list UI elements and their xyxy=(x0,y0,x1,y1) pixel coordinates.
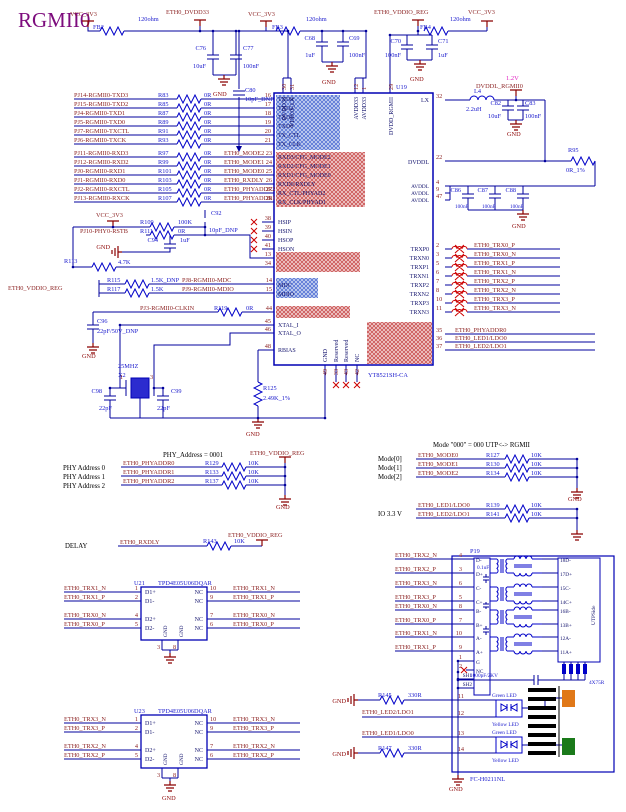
value: 1000pF/2KV xyxy=(470,673,498,679)
net-label: ETH0_TRX1_N xyxy=(395,630,437,637)
pin-number: 8 xyxy=(173,644,176,651)
pin-number: 46 xyxy=(265,326,271,333)
pin-label: LX xyxy=(421,98,430,104)
value: 100K xyxy=(178,219,192,226)
voltage-label: 1.2V xyxy=(506,75,519,82)
pin-label: TXD0 xyxy=(278,124,293,130)
value: 120ohm xyxy=(306,16,327,23)
pin-number: 22 xyxy=(436,154,442,161)
net-label: PJ0-RGMII0-RXD1 xyxy=(74,168,125,175)
gnd-label: GND xyxy=(276,504,290,511)
value: 120ohm xyxy=(138,16,159,23)
pin-label: D1+ xyxy=(145,721,156,727)
net-label: PJ5-RGMII0-TXD0 xyxy=(74,119,125,126)
pin-label: HSOP xyxy=(278,238,294,244)
pin-number: 1 xyxy=(120,374,123,381)
net-label: ETH0_TRX0_P xyxy=(474,242,515,249)
pin-label: TXD1 xyxy=(278,115,293,121)
magjack-p19: P19 0.1uF ETH0_TRX2_N4D-18D- ETH0_TRX2_P… xyxy=(395,548,614,772)
pin-number: 4 xyxy=(135,743,139,750)
refdes: FB3 xyxy=(272,24,283,31)
led-label: Yellow LED xyxy=(492,722,519,728)
net-label: ETH0_TRX2_P xyxy=(64,752,105,759)
net-label: ETH0_TRX0_N xyxy=(474,251,516,258)
net-label: VCC_3V3 xyxy=(248,11,275,18)
pin-label: C- xyxy=(476,586,482,592)
clkin-row: PJ3-RGMII0-CLKIN R1190R 44 xyxy=(140,305,273,312)
pin-number: 28 xyxy=(266,195,272,202)
pin-number: 33 xyxy=(333,369,340,375)
net-label: ETH0_LED2/LDO1 xyxy=(362,709,414,716)
value: 0R xyxy=(204,119,212,126)
gnd-label: GND xyxy=(213,91,227,98)
value: 100nF xyxy=(243,63,260,70)
rpack-r2 xyxy=(569,664,573,674)
refdes: R143 xyxy=(203,538,217,545)
net-label: PJ1-RGMII0-RXD0 xyxy=(74,177,125,184)
led-green xyxy=(562,738,575,755)
net-label: ETH0_TRX2_P xyxy=(474,278,515,285)
pin-label: RBIAS xyxy=(278,348,296,354)
value: 10K xyxy=(248,460,259,467)
pin-label: D2+ xyxy=(145,617,156,623)
net-label: ETH0_TRX2_N xyxy=(395,552,437,559)
pin-number: 41 xyxy=(265,242,271,249)
strap-label: IO 3.3 V xyxy=(378,511,402,518)
refdes: R145 xyxy=(378,692,392,699)
hatch-ctrl xyxy=(276,252,360,272)
net-label: ETH0_PHYADDR0 xyxy=(455,327,506,334)
transformer-b xyxy=(490,607,542,627)
net-label: PJ7-RGMII0-TXCTL xyxy=(74,128,129,135)
pin-number: 10 xyxy=(210,716,216,723)
mode-section: Mode "000" = 000 UTP<-> RGMII Mode[0]ETH… xyxy=(378,442,582,518)
crystal-circuit: C96 22pF/50V_DNP GND 25MHZ X2 1 3 C98 22… xyxy=(82,318,302,438)
value: 22pF xyxy=(157,405,170,412)
pin-label: AVDDL xyxy=(411,191,429,197)
pin-label: MDC xyxy=(278,283,292,289)
pin-label: TX_CTL xyxy=(278,133,301,139)
pin-number: 6 xyxy=(459,580,462,587)
net-label: ETH0_TRX1_N xyxy=(474,269,516,276)
pin-number: 3 xyxy=(157,772,160,779)
pin-number: 3 xyxy=(436,251,439,258)
pin-number: 39 xyxy=(265,224,271,231)
refdes: R97 xyxy=(158,150,169,157)
refdes: C88 xyxy=(506,187,517,194)
refdes: R89 xyxy=(158,119,169,126)
pin-number: 5 xyxy=(135,752,138,759)
gnd-label: GND xyxy=(449,786,463,793)
pin-number: 21 xyxy=(265,137,271,144)
pin-label: RX_CTL/PHYAD2 xyxy=(278,191,325,197)
refdes: C94 xyxy=(148,237,159,244)
pin-label: DVDD_RGMII xyxy=(389,97,395,135)
net-label: ETH0_TRX1_P xyxy=(395,644,436,651)
pin-label: AVDDL xyxy=(411,198,429,204)
value: 0R xyxy=(204,92,212,99)
pin-label: D1+ xyxy=(145,590,156,596)
pin-number: 7 xyxy=(459,617,462,624)
pin-label: TRXN1 xyxy=(410,274,429,280)
value: 10K xyxy=(248,469,259,476)
pin-label: 11A+ xyxy=(560,650,572,656)
value: 0R_1% xyxy=(566,167,586,174)
net-label: ETH0_LED1/LDO0 xyxy=(418,502,470,509)
net-label: ETH0_MODE1 xyxy=(224,159,264,166)
value: 0R xyxy=(204,150,212,157)
part-number: TPD4E05U06DQAR xyxy=(158,708,213,715)
value: 0.1uF xyxy=(477,565,489,571)
net-label: ETH0_TRX3_N xyxy=(64,716,106,723)
refdes: C76 xyxy=(196,45,207,52)
delay-row: DELAY ETH0_RXDLY R143 10K ETH0_VDDIO_REG xyxy=(65,532,283,550)
refdes: R115 xyxy=(107,277,120,284)
pin-label: A- xyxy=(476,636,482,642)
pin-label: AVDD33 xyxy=(362,97,368,120)
refdes: R127 xyxy=(486,452,500,459)
net-label: ETH0_VDDIO_REG xyxy=(8,285,63,292)
net-label: ETH0_TRX2_P xyxy=(395,566,436,573)
net-label: ETH0_RXDLY xyxy=(224,177,264,184)
pin-number: 20 xyxy=(265,128,271,135)
pin-number: 45 xyxy=(265,318,271,325)
gnd-label: GND xyxy=(568,496,582,503)
pin-label: TX_CLK xyxy=(278,142,302,148)
value: 100nF xyxy=(349,52,366,59)
pin-label: G xyxy=(476,660,480,666)
strap-label: PHY Address 1 xyxy=(63,474,105,481)
value: 10K xyxy=(531,470,542,477)
pin-label: NC xyxy=(355,354,361,362)
refdes: C98 xyxy=(92,388,103,395)
pin-label: DVDDL xyxy=(408,160,429,166)
pin-label: TRXP1 xyxy=(411,265,429,271)
pin-label: TRXN0 xyxy=(410,256,429,262)
pin-label: SH2 xyxy=(463,682,473,688)
net-label: ETH0_MODE2 xyxy=(224,150,264,157)
pin-number: 31 xyxy=(289,84,296,90)
pin-number: 2 xyxy=(436,242,439,249)
net-label: ETH0_TRX0_P xyxy=(395,617,436,624)
pin-label: C+ xyxy=(476,600,483,606)
net-label: ETH0_TRX2_P xyxy=(233,752,274,759)
net-label: ETH0_TRX0_N xyxy=(64,612,106,619)
refdes: C83 xyxy=(525,100,536,107)
pin-number: 8 xyxy=(173,772,176,779)
pin-number: 5 xyxy=(135,621,138,628)
value: 0R xyxy=(204,159,212,166)
refdes: R107 xyxy=(158,195,172,202)
pin-label: NC xyxy=(195,748,203,754)
value: 100nF xyxy=(455,204,469,210)
pin-label: RXD2/CFG_MODE1 xyxy=(278,164,331,170)
esd-u21: U21 TPD4E05U06DQAR ETH0_TRX1_N1D1+ ETH0_… xyxy=(64,580,275,651)
refdes: R117 xyxy=(107,286,120,293)
net-label: ETH0_LED1/LDO0 xyxy=(362,730,414,737)
pin-number: 17 xyxy=(265,101,271,108)
section-title: Mode "000" = 000 UTP<-> RGMII xyxy=(433,442,531,449)
pin-label: 12A- xyxy=(560,636,571,642)
net-label: ETH0_TRX3_P xyxy=(233,725,274,732)
value: 120ohm xyxy=(450,16,471,23)
pin-number: 14 xyxy=(458,746,465,753)
value: 25MHZ xyxy=(118,363,138,370)
pin-number: 3 xyxy=(459,566,462,573)
pin-number: 15 xyxy=(266,286,272,293)
pin-number: 9 xyxy=(459,644,462,651)
pin-number: 44 xyxy=(266,305,273,312)
net-label: ETH0_TRX0_P xyxy=(64,621,105,628)
pin-number: 8 xyxy=(459,603,462,610)
refdes: R119 xyxy=(214,305,227,312)
pin-label: 14C+ xyxy=(560,600,572,606)
pin-label: RXD3/CFG_MODE2 xyxy=(278,155,331,161)
pin-number: 35 xyxy=(436,327,442,334)
pin-label: TRXN3 xyxy=(410,310,429,316)
pin-label: GND xyxy=(179,625,185,637)
pin-number: 42 xyxy=(354,369,361,375)
value: 1.5K_DNP xyxy=(151,277,180,284)
pin-label: RXD1/CFG_MODE0 xyxy=(278,173,331,179)
pin-label: D1- xyxy=(145,730,154,736)
transformer-a xyxy=(490,634,542,654)
gnd-label: GND xyxy=(162,795,176,802)
net-label: VCC_3V3 xyxy=(468,9,495,16)
refdes: R103 xyxy=(158,177,172,184)
pin-label: B- xyxy=(476,609,482,615)
value: 10K xyxy=(248,478,259,485)
value: 330R xyxy=(408,745,422,752)
rj45-jack xyxy=(528,686,575,757)
pin-label: MDIO xyxy=(278,292,295,298)
pin-label: TRXP3 xyxy=(411,301,429,307)
pin-label: TRXP0 xyxy=(411,247,429,253)
pin-label: XTAL_O xyxy=(278,331,302,337)
refdes: C70 xyxy=(391,38,402,45)
net-label: ETH0_PHYADDR1 xyxy=(123,469,174,476)
refdes: C80 xyxy=(245,87,256,94)
refdes: R125 xyxy=(263,385,277,392)
pin-label: TXD3 xyxy=(278,97,293,103)
value: 10K xyxy=(531,511,542,518)
pin-number: 6 xyxy=(210,752,213,759)
pin-label: GND xyxy=(163,753,169,765)
refdes: R139 xyxy=(486,502,500,509)
value: 10uF xyxy=(193,63,206,70)
value: 0R xyxy=(204,101,212,108)
value: 1.5K xyxy=(151,286,164,293)
pin-number: 2 xyxy=(135,594,138,601)
part-number: TPD4E05U06DQAR xyxy=(158,580,213,587)
pin-label: D2+ xyxy=(145,748,156,754)
rpack-r4 xyxy=(583,664,587,674)
gnd-label: GND xyxy=(96,244,110,251)
pin-number: 14 xyxy=(266,277,273,284)
pin-label: 15C- xyxy=(560,586,571,592)
pin-number: 2 xyxy=(135,725,138,732)
value: 0R xyxy=(204,168,212,175)
value: 10pF_DNP xyxy=(209,227,238,234)
net-label: ETH0_RXDLY xyxy=(120,539,160,546)
value: 0R xyxy=(204,186,212,193)
refdes: R87 xyxy=(158,110,169,117)
net-label: ETH0_TRX2_N xyxy=(64,743,106,750)
schematic-canvas: RGMII0 U19 YT8521SH-CA DVDD33 VDD33_LX A… xyxy=(0,0,626,812)
core-power: 32LX L42.2uH 1.2V DVDDL_RGMII0 C8210uF C… xyxy=(408,75,586,230)
pin-number: 13 xyxy=(265,251,271,258)
pin-number: 1 xyxy=(361,87,368,90)
refdes: R133 xyxy=(205,469,219,476)
value: 0R xyxy=(204,177,212,184)
value: 1uF xyxy=(180,237,190,244)
pin-number: 1 xyxy=(135,716,138,723)
value: 10K xyxy=(531,502,542,509)
net-label: PJ13-RGMII0-RXCK xyxy=(74,195,130,202)
refdes: P19 xyxy=(470,548,480,555)
refdes: R130 xyxy=(486,461,500,468)
net-label: PJ2-RGMII0-RXCTL xyxy=(74,186,130,193)
pin-label: D2- xyxy=(145,626,154,632)
section-title: PHY_Address = 0001 xyxy=(163,452,223,459)
net-label: ETH0_TRX0_P xyxy=(233,621,274,628)
refdes: R129 xyxy=(205,460,219,467)
pin-number: 26 xyxy=(266,177,272,184)
value: 2.2uH xyxy=(466,106,482,113)
refdes: C69 xyxy=(349,35,360,42)
net-label: ETH0_TRX1_P xyxy=(64,594,105,601)
pin-number: 4 xyxy=(436,179,440,186)
pin-number: 16 xyxy=(265,92,271,99)
p19-part: FC-H0211NL xyxy=(470,776,505,783)
net-label: ETH0_TRX3_N xyxy=(395,580,437,587)
pin-label: Reserved xyxy=(344,340,350,362)
pin-label: HSIP xyxy=(278,220,292,226)
value: 100nF xyxy=(482,204,496,210)
strap-label: PHY Address 0 xyxy=(63,465,106,472)
pin-number: 34 xyxy=(265,260,272,267)
strap-label: DELAY xyxy=(65,543,87,550)
pin-label: 16B- xyxy=(560,609,571,615)
pin-number: 49 xyxy=(322,369,329,375)
net-label: ETH0_TRX3_P xyxy=(474,296,515,303)
strap-label: Mode[1] xyxy=(378,465,402,472)
net-label: ETH0_TRX3_P xyxy=(395,594,436,601)
pin-number: 9 xyxy=(436,186,439,193)
net-label: PJ6-RGMII0-TXCK xyxy=(74,137,127,144)
refdes: C92 xyxy=(211,210,222,217)
gnd-label: GND xyxy=(332,698,346,705)
tx-rows: PJ14-RGMII0-TXD3R830R16TXD3 PJ15-RGMII0-… xyxy=(74,92,302,148)
rpack-r3 xyxy=(576,664,580,674)
net-label: DVDDL_RGMII0 xyxy=(476,83,523,90)
pin-label: NC xyxy=(195,721,203,727)
mdio-circuit: ETH0_VDDIO_REG R1151.5K_DNP PJ8-RGMII0-M… xyxy=(8,277,295,298)
led-label: Yellow LED xyxy=(492,758,519,764)
pin-number: 3 xyxy=(150,374,153,381)
pin-label: TXD2 xyxy=(278,106,293,112)
net-label: ETH0_TRX0_N xyxy=(233,612,275,619)
pin-number: 10 xyxy=(436,296,442,303)
pin-number: 12 xyxy=(353,84,360,90)
net-label: PJ10-PHY0-RSTB xyxy=(80,228,128,235)
value: 10K xyxy=(531,461,542,468)
pin-number: 2 xyxy=(459,663,462,670)
value: 10K xyxy=(234,538,245,545)
pin-label: GND xyxy=(323,348,329,362)
net-label: ETH0_MODE1 xyxy=(418,461,458,468)
gnd-label: GND xyxy=(512,223,526,230)
pin-number: 7 xyxy=(436,278,439,285)
crystal-body xyxy=(131,378,149,398)
refdes: R95 xyxy=(568,147,579,154)
net-label: PJ11-RGMII0-RXD3 xyxy=(74,150,128,157)
u19-refdes: U19 xyxy=(396,84,407,91)
net-label: ETH0_TRX1_N xyxy=(233,585,275,592)
net-label: PJ3-RGMII0-CLKIN xyxy=(140,305,195,312)
value: 0R xyxy=(204,110,212,117)
net-label: ETH0_PHYADDR0 xyxy=(123,460,174,467)
net-label: ETH0_MODE0 xyxy=(418,452,458,459)
pin-label: RXD0/RXDLY xyxy=(278,182,316,188)
value: 100nF xyxy=(525,113,542,120)
refdes: R113 xyxy=(64,258,77,265)
pin-label: 17D+ xyxy=(560,572,572,578)
value: 10K xyxy=(531,452,542,459)
pin-number: 9 xyxy=(210,725,213,732)
pin-number: 24 xyxy=(266,159,273,166)
pin-number: 18 xyxy=(265,110,271,117)
refdes: C99 xyxy=(171,388,182,395)
net-label: ETH0_VDDIO_REG xyxy=(374,9,429,16)
pin-number: 13 xyxy=(458,730,464,737)
net-label: PJ4-RGMII0-TXD1 xyxy=(74,110,125,117)
rpack-r1 xyxy=(562,664,566,674)
phy-address-section: PHY_Address = 0001 ETH0_VDDIO_REG PHY Ad… xyxy=(63,450,305,511)
net-label: ETH0_VDDIO_REG xyxy=(228,532,283,539)
value: 0R xyxy=(204,195,212,202)
led-label: Green LED xyxy=(492,693,517,699)
strap-label: Mode[0] xyxy=(378,456,402,463)
transformer-d xyxy=(490,556,542,576)
value: 4X75R xyxy=(589,680,605,686)
net-label: VCC_3V3 xyxy=(70,11,97,18)
pin-number: 19 xyxy=(265,119,271,126)
pin-label: AVDDL xyxy=(411,184,429,190)
pin-number: 32 xyxy=(436,93,442,100)
gnd-label: GND xyxy=(246,431,260,438)
refdes: C77 xyxy=(243,45,254,52)
refdes: C71 xyxy=(438,38,449,45)
net-label: PJ14-RGMII0-TXD3 xyxy=(74,92,128,99)
pin-number: 11 xyxy=(458,693,464,700)
pin-label: NC xyxy=(195,599,203,605)
pin-number: 37 xyxy=(436,343,442,350)
value: 22pF xyxy=(99,405,112,412)
net-label: ETH0_TRX1_N xyxy=(64,585,106,592)
pin-label: 18D- xyxy=(560,558,571,564)
net-label: PJ15-RGMII0-TXD2 xyxy=(74,101,128,108)
value: 1uF xyxy=(438,52,448,59)
net-label: ETH0_LED1/LDO0 xyxy=(455,335,507,342)
net-label: PJ8-RGMII0-MDC xyxy=(182,277,231,284)
refdes: C96 xyxy=(97,318,108,325)
pin-number: 1 xyxy=(135,585,138,592)
net-label: ETH0_TRX2_N xyxy=(233,743,275,750)
hatch-led xyxy=(367,322,432,364)
net-label: VCC_3V3 xyxy=(96,212,123,219)
pin-number: 38 xyxy=(265,215,271,222)
